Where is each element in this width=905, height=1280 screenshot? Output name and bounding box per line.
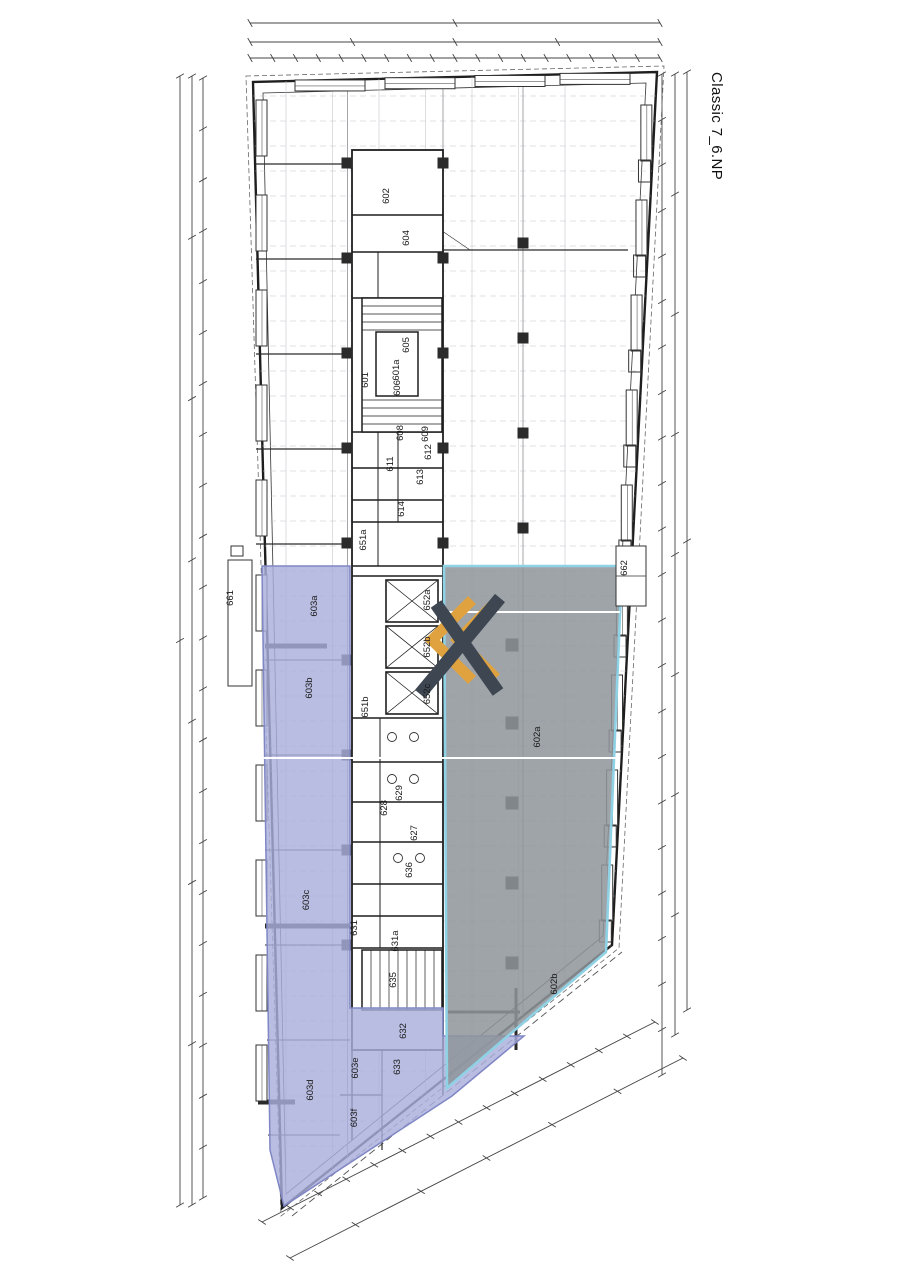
column [342, 538, 353, 549]
window-bay [256, 195, 267, 251]
room-label: 652a [422, 589, 433, 611]
floorplan-canvas: 602604601601a605606608609612611613614651… [0, 0, 905, 1280]
window-bay [256, 955, 267, 1011]
room-label: 631 [349, 920, 360, 936]
room-label: 614 [396, 501, 407, 517]
column [518, 523, 529, 534]
window-bay [385, 78, 455, 89]
room-label: 606 [392, 380, 403, 396]
window-bay [295, 80, 365, 91]
dimension-lines-top [248, 19, 663, 62]
window-bay [560, 73, 630, 84]
room-label: 601 [360, 372, 371, 388]
column [342, 158, 353, 169]
window-bay [256, 385, 267, 441]
room-label: 635 [388, 972, 399, 988]
window-bay [636, 200, 647, 256]
room-label: 633 [392, 1059, 403, 1075]
room-label: 601a [391, 359, 402, 381]
column [438, 538, 449, 549]
column [518, 333, 529, 344]
room-label: 651b [360, 696, 371, 717]
room-label: 652c [422, 683, 433, 704]
room-label: 608 [395, 425, 406, 441]
dimension-lines-left [176, 74, 207, 1208]
room-label: 613 [415, 469, 426, 485]
room-label: 627 [409, 825, 420, 841]
room-label: 603b [304, 677, 315, 698]
room-label: 602 [381, 188, 392, 204]
room-label: 603a [309, 595, 320, 617]
window-bay [475, 75, 545, 86]
dimension-line [248, 19, 663, 27]
window-bay [626, 390, 637, 446]
room-label: 605 [401, 337, 412, 353]
window-bay [256, 480, 267, 536]
dimension-line [188, 74, 196, 1208]
terrace-661 [228, 546, 252, 686]
window-bay [256, 1045, 267, 1101]
window-bay [641, 105, 652, 161]
room-label: 662 [619, 560, 630, 576]
dimension-line [248, 54, 663, 62]
dimension-line [683, 70, 691, 1013]
staircase [362, 298, 442, 432]
column [438, 348, 449, 359]
room-label: 602b [549, 973, 560, 994]
staircase-secondary [362, 950, 442, 1010]
column [438, 443, 449, 454]
window-bay [631, 295, 642, 351]
dimension-line [671, 72, 679, 1038]
window-bay [256, 860, 267, 916]
window-bay [256, 100, 267, 156]
column [342, 253, 353, 264]
column [518, 238, 529, 249]
window-bay [621, 485, 632, 541]
dimension-line [176, 74, 184, 1208]
column [342, 443, 353, 454]
room-label: 603f [349, 1108, 360, 1127]
room-label: 604 [401, 230, 412, 246]
column [438, 253, 449, 264]
room-label: 652b [422, 636, 433, 657]
floorplan-drawing: 602604601601a605606608609612611613614651… [0, 0, 905, 1280]
dimension-line [658, 72, 666, 1078]
room-label: 609 [420, 426, 431, 442]
room-label: 612 [423, 444, 434, 460]
room-label: 636 [404, 862, 415, 878]
plan-title: Classic 7_6.NP [708, 72, 725, 180]
room-label: 603e [350, 1057, 361, 1078]
room-label: 631a [390, 930, 401, 952]
dimension-line [199, 76, 207, 1201]
room-label: 632 [398, 1023, 409, 1039]
column [518, 428, 529, 439]
room-label: 629 [394, 785, 405, 801]
room-label: 603c [301, 889, 312, 910]
room-label: 661 [225, 590, 236, 606]
room-label: 603d [305, 1079, 316, 1100]
dimension-lines-right [658, 70, 691, 1078]
window-bay [256, 290, 267, 346]
column [342, 348, 353, 359]
dimension-line [248, 38, 663, 46]
room-label: 628 [379, 800, 390, 816]
room-label: 611 [385, 456, 396, 471]
room-label: 651a [358, 529, 369, 551]
room-label: 602a [532, 726, 543, 748]
column [438, 158, 449, 169]
